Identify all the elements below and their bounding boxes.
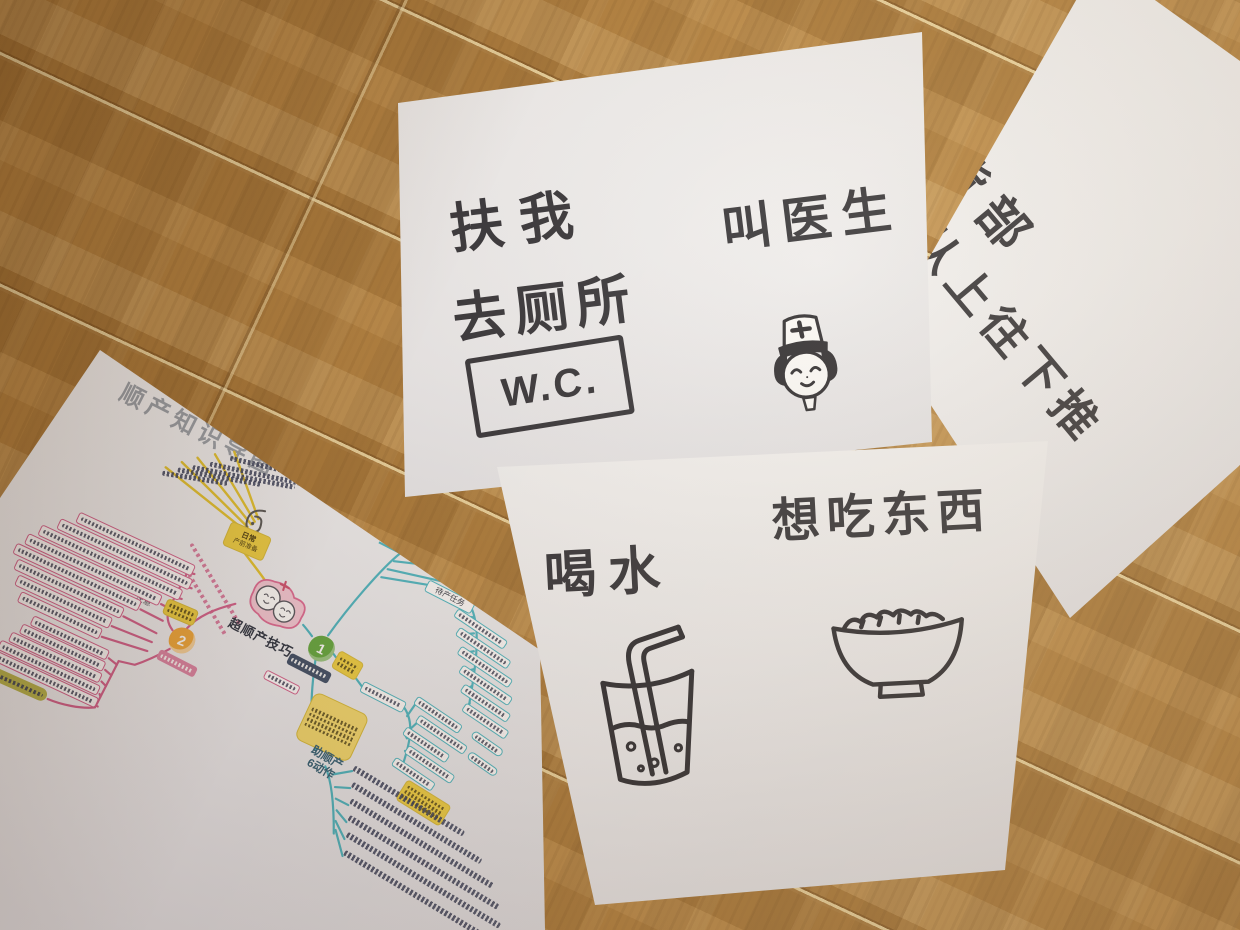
straw-cup-icon bbox=[584, 608, 712, 802]
toilet-card-line1: 扶我 bbox=[445, 169, 594, 264]
nurse-face-icon bbox=[748, 286, 861, 443]
eat-label: 想吃东西 bbox=[770, 470, 993, 551]
food-bowl-icon bbox=[817, 583, 981, 717]
photo-scene: 在背部 从上往下推 扶我 去厕所 W.C. 叫医生 bbox=[0, 0, 1240, 930]
toilet-card-content: 扶我 去厕所 W.C. 叫医生 bbox=[405, 47, 970, 507]
call-doctor-label: 叫医生 bbox=[717, 169, 904, 262]
drink-label: 喝水 bbox=[542, 527, 674, 609]
wc-sign-text: W.C. bbox=[499, 356, 600, 416]
toilet-card-paper: 扶我 去厕所 W.C. 叫医生 bbox=[395, 30, 940, 500]
